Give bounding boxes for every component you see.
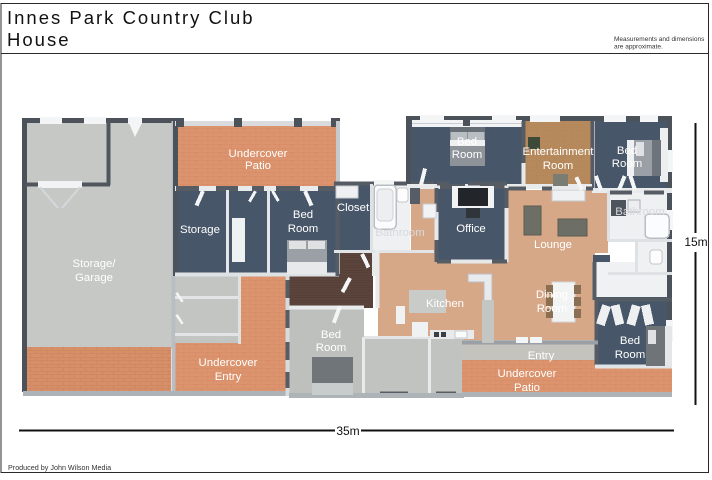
svg-text:Lounge: Lounge (534, 239, 572, 251)
svg-text:Room: Room (288, 223, 318, 235)
svg-text:Patio: Patio (514, 382, 540, 394)
svg-text:Storage: Storage (180, 224, 220, 236)
svg-text:Innes Park Country Club: Innes Park Country Club (7, 7, 255, 28)
svg-text:Kitchen: Kitchen (426, 298, 464, 310)
svg-text:Closet: Closet (337, 202, 370, 214)
svg-text:Bed: Bed (321, 329, 341, 341)
svg-text:House: House (7, 29, 70, 50)
svg-text:Produced by John Wilson Media: Produced by John Wilson Media (8, 463, 111, 472)
svg-text:Garage: Garage (75, 272, 113, 284)
svg-text:Bed: Bed (457, 136, 477, 148)
svg-text:Measurements and dimensions: Measurements and dimensions (614, 36, 705, 43)
svg-text:Undercover: Undercover (229, 148, 288, 160)
svg-text:Room: Room (452, 149, 482, 161)
svg-text:Room: Room (612, 158, 642, 170)
svg-text:Room: Room (316, 342, 346, 354)
svg-text:Entry: Entry (528, 350, 555, 362)
svg-text:Room: Room (537, 303, 567, 315)
svg-text:Dining: Dining (536, 289, 568, 301)
svg-text:Entertainment: Entertainment (523, 146, 595, 158)
svg-text:Undercover: Undercover (199, 357, 258, 369)
svg-text:Office: Office (456, 223, 486, 235)
svg-text:15m: 15m (684, 235, 707, 249)
svg-text:Bathroom: Bathroom (375, 227, 424, 239)
svg-text:are approximate.: are approximate. (614, 44, 663, 51)
svg-text:Bed: Bed (617, 145, 637, 157)
svg-text:Storage/: Storage/ (72, 258, 116, 270)
svg-text:Entry: Entry (215, 371, 242, 383)
svg-text:Room: Room (543, 160, 573, 172)
svg-text:Room: Room (615, 349, 645, 361)
svg-text:Undercover: Undercover (498, 368, 557, 380)
svg-text:35m: 35m (336, 424, 359, 438)
svg-text:Bed: Bed (293, 209, 313, 221)
svg-text:Bathroom: Bathroom (615, 206, 664, 218)
svg-text:Patio: Patio (245, 160, 271, 172)
svg-text:Bed: Bed (620, 335, 640, 347)
